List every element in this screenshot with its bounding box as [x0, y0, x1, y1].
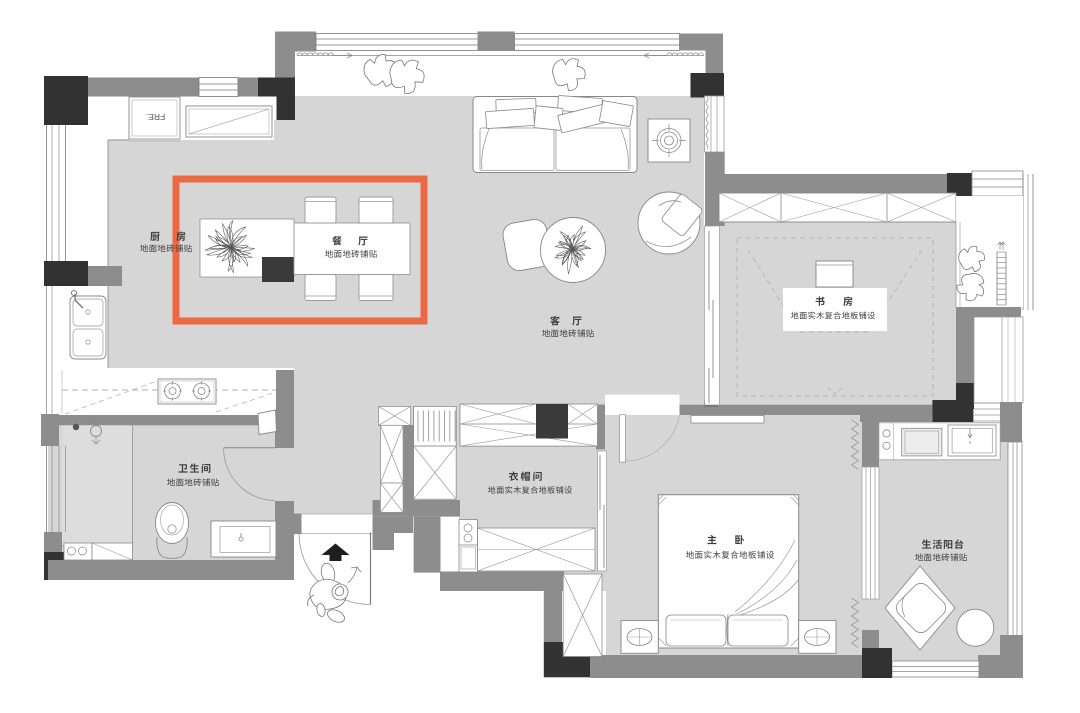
svg-text:FRE.: FRE. — [146, 112, 165, 122]
